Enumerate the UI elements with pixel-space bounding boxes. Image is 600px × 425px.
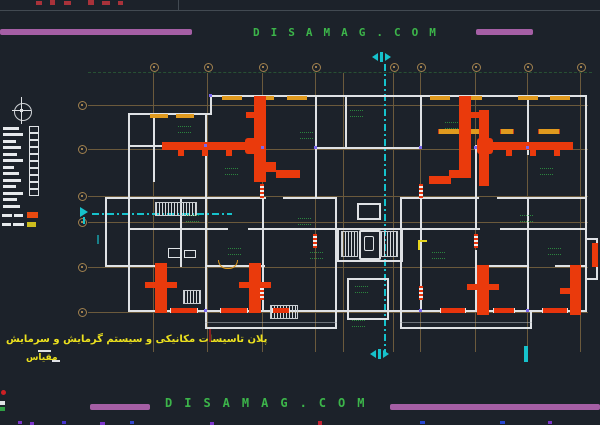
duct-segment: [429, 176, 451, 184]
clipped-red-text-fragment: [118, 1, 123, 5]
clipped-red-text-fragment: [50, 0, 55, 5]
grid-line-h: [88, 105, 588, 106]
section-marker-icon: [378, 349, 381, 359]
clipped-ui-fragment: [62, 421, 66, 424]
legend-text-bar: [3, 185, 16, 188]
duct-branch-nub: [471, 112, 479, 118]
duct-riser: [155, 263, 167, 313]
fixture-box: [184, 250, 196, 258]
grip-point: [526, 146, 529, 149]
wall-segment: [315, 147, 422, 149]
legend-symbol-box: [29, 147, 39, 154]
grid-bubble: [259, 63, 268, 72]
legend-symbol-box: [29, 140, 39, 147]
wall-segment: [105, 197, 107, 267]
legend-text-bar: [3, 205, 20, 208]
legend-text-bar: [3, 133, 23, 136]
radiator-mark: [170, 308, 198, 313]
duct-segment: [276, 170, 300, 178]
legend-symbol-box: [29, 182, 39, 189]
wall-segment: [500, 228, 587, 230]
brand-bar-right: [476, 29, 533, 35]
duct-branch-nub: [489, 284, 499, 290]
legend-text-bar: [2, 214, 12, 217]
duct-segment: [489, 142, 573, 150]
light-well-box: [347, 278, 389, 320]
room-label-text: [355, 286, 368, 293]
wall-segment: [105, 265, 128, 267]
wall-segment: [128, 228, 228, 230]
legend-text-bar: [3, 153, 17, 156]
grid-bubble: [78, 192, 87, 201]
grip-point: [419, 309, 422, 312]
grid-bubble: [78, 101, 87, 110]
room-label-text: [540, 168, 553, 175]
radiator-mark: [272, 308, 290, 313]
balcony-wall: [205, 310, 207, 328]
duct-riser: [477, 265, 489, 315]
duct-branch-nub: [246, 112, 254, 118]
shaft-box: [357, 203, 381, 220]
grid-bubble: [417, 63, 426, 72]
clipped-red-text-fragment: [88, 0, 94, 5]
legend-symbol-box: [29, 126, 39, 133]
room-label-text: [178, 126, 191, 133]
scale-underline: [38, 350, 51, 352]
grid-bubble: [390, 63, 399, 72]
brand-bar-left: [0, 29, 192, 35]
balcony-wall: [335, 310, 337, 328]
legend-symbol-box: [29, 133, 39, 140]
legend-swatch-secondary: [27, 222, 36, 227]
datum-dashed-line: [88, 72, 592, 73]
duct-branch-nub: [202, 150, 208, 156]
grip-point: [204, 144, 207, 147]
section-marker-icon: [380, 52, 383, 62]
clipped-red-text-fragment: [102, 1, 110, 5]
wall-segment: [128, 113, 212, 115]
duct-segment: [162, 142, 252, 150]
legend-text-bar: [3, 146, 21, 149]
window-fill: [222, 96, 242, 100]
wall-segment: [420, 95, 422, 149]
window-fill: [430, 96, 450, 100]
grip-point: [526, 309, 529, 312]
scale-value-bar: [52, 360, 60, 362]
grid-bubble: [524, 63, 533, 72]
stair-hatch: [380, 231, 398, 257]
balcony-wall: [205, 327, 337, 329]
duct-branch-nub: [467, 284, 477, 290]
duct-riser: [570, 265, 581, 315]
column-marker: [419, 184, 423, 198]
room-label-text: [298, 218, 311, 225]
radiator-mark: [493, 308, 515, 313]
wall-segment: [105, 197, 128, 199]
title-divider-tick: [209, 329, 211, 342]
clipped-ui-fragment: [0, 407, 5, 411]
legend-symbol-box: [29, 175, 39, 182]
column-marker: [260, 286, 264, 300]
duct-branch-nub: [560, 288, 570, 294]
balcony-rail-line: [400, 322, 532, 323]
balcony-wall: [530, 310, 532, 328]
room-label-text: [520, 215, 533, 222]
window-fill: [150, 114, 168, 118]
duct-corner-yellow: [418, 240, 427, 250]
grid-bubble: [472, 63, 481, 72]
wall-segment: [400, 197, 479, 199]
radiator-mark: [538, 129, 560, 134]
legend-text-bar: [2, 223, 11, 226]
radiator-mark: [438, 129, 460, 134]
wall-segment: [283, 197, 337, 199]
watermark-top: DISAMAG.COM: [253, 26, 447, 39]
grip-point: [474, 146, 477, 149]
wall-segment: [128, 197, 266, 199]
section-marker-icon: [80, 207, 88, 217]
duct-segment: [266, 162, 276, 172]
stair-hatch: [183, 290, 201, 304]
duct-branch-nub: [226, 150, 232, 156]
grip-point: [209, 94, 212, 97]
plan-title: پلان تاسیسات مکانیکی و سیستم گرمایش و سر…: [6, 334, 267, 345]
section-marker-icon: [372, 53, 378, 61]
balcony-rail-line: [205, 322, 337, 323]
legend-symbol-box: [29, 189, 39, 196]
wall-segment: [153, 113, 155, 182]
duct-branch-nub: [506, 150, 512, 156]
clipped-ui-fragment: [1, 390, 6, 395]
room-label-text: [432, 252, 445, 259]
grid-bubble: [78, 263, 87, 272]
legend-symbol-box: [29, 168, 39, 175]
column-marker: [260, 184, 264, 198]
legend-text-bar: [13, 223, 24, 226]
legend-symbol-box: [29, 161, 39, 168]
clipped-ui-fragment: [0, 401, 5, 405]
legend-text-bar: [3, 127, 19, 130]
duct-riser: [459, 96, 471, 178]
legend-text-bar: [3, 166, 14, 169]
window-fill: [287, 96, 307, 100]
elevator-symbol-inner: [364, 236, 374, 251]
window-fill: [550, 96, 570, 100]
room-label-text: [186, 215, 199, 222]
room-label-text: [445, 122, 458, 129]
pipe-riser-cyan: [524, 346, 528, 362]
room-label-text: [310, 252, 323, 259]
clipped-red-text-fragment: [36, 1, 42, 5]
fixture-box: [168, 248, 182, 258]
clipped-red-text-fragment: [64, 1, 71, 5]
column-marker: [419, 286, 423, 300]
legend-swatch-heating: [27, 212, 38, 218]
north-symbol-icon: [20, 109, 23, 112]
legend-text-bar: [14, 214, 23, 217]
grip-point: [419, 146, 422, 149]
radiator-mark: [542, 308, 568, 313]
wall-segment: [400, 228, 480, 230]
clipped-ui-fragment: [548, 421, 552, 424]
pipe-riser-cyan: [97, 235, 99, 244]
room-label-text: [548, 248, 561, 255]
duct-branch-nub: [178, 150, 184, 156]
duct-branch-nub: [167, 282, 177, 288]
duct-riser: [592, 243, 598, 267]
grid-bubble: [312, 63, 321, 72]
legend-text-bar: [3, 172, 19, 175]
radiator-mark: [220, 308, 248, 313]
duct-branch-nub: [530, 150, 536, 156]
grid-bubble: [577, 63, 586, 72]
section-marker-icon: [385, 53, 391, 61]
grip-point: [204, 309, 207, 312]
room-label-text: [225, 168, 238, 175]
grid-bubble: [204, 63, 213, 72]
column-marker: [474, 234, 478, 248]
grid-bubble: [78, 308, 87, 317]
grip-point: [261, 146, 264, 149]
radiator-mark: [440, 308, 466, 313]
wall-segment: [345, 95, 347, 149]
balcony-wall: [400, 327, 532, 329]
section-marker-icon: [83, 217, 85, 224]
balcony-wall: [400, 310, 402, 328]
cad-viewport[interactable]: DISAMAG.COM: [0, 0, 600, 425]
clipped-ui-fragment: [318, 421, 322, 425]
room-label-text: [350, 110, 363, 117]
grid-bubble: [78, 145, 87, 154]
clipped-ui-fragment: [18, 421, 22, 424]
wall-segment: [128, 113, 130, 312]
radiator-mark: [500, 129, 514, 134]
duct-branch-nub: [239, 282, 249, 288]
grid-line-h: [88, 222, 588, 223]
section-marker-icon: [370, 350, 376, 358]
wall-segment: [475, 145, 477, 230]
clipped-ui-fragment: [130, 421, 134, 424]
window-fill: [518, 96, 538, 100]
watermark-bottom: DISAMAG.COM: [165, 396, 376, 410]
brand-bar-left: [90, 404, 150, 410]
legend-text-bar: [3, 140, 16, 143]
duct-riser: [254, 96, 266, 182]
clipped-ui-fragment: [420, 421, 425, 424]
window-fill: [176, 114, 194, 118]
clipped-ui-fragment: [500, 421, 505, 424]
grip-point: [314, 146, 317, 149]
stair-hatch: [341, 231, 358, 257]
grid-bubble: [150, 63, 159, 72]
room-label-text: [300, 132, 313, 139]
section-marker-icon: [383, 350, 389, 358]
brand-bar-right: [390, 404, 600, 410]
top-divider-line: [0, 10, 600, 11]
room-label-text: [352, 320, 365, 327]
room-label-text: [228, 248, 241, 255]
duct-branch-nub: [145, 282, 155, 288]
north-symbol-icon: [14, 103, 32, 121]
duct-branch-nub: [554, 150, 560, 156]
column-marker: [313, 234, 317, 248]
stair-hatch: [155, 202, 197, 216]
legend-text-bar: [3, 192, 23, 195]
wall-segment: [210, 95, 212, 115]
legend-text-bar: [3, 159, 23, 162]
legend-text-bar: [3, 179, 21, 182]
wall-segment: [128, 265, 158, 267]
wall-segment: [497, 197, 587, 199]
legend-symbol-box: [29, 154, 39, 161]
legend-text-bar: [3, 198, 17, 201]
top-divider-tick: [178, 0, 179, 10]
